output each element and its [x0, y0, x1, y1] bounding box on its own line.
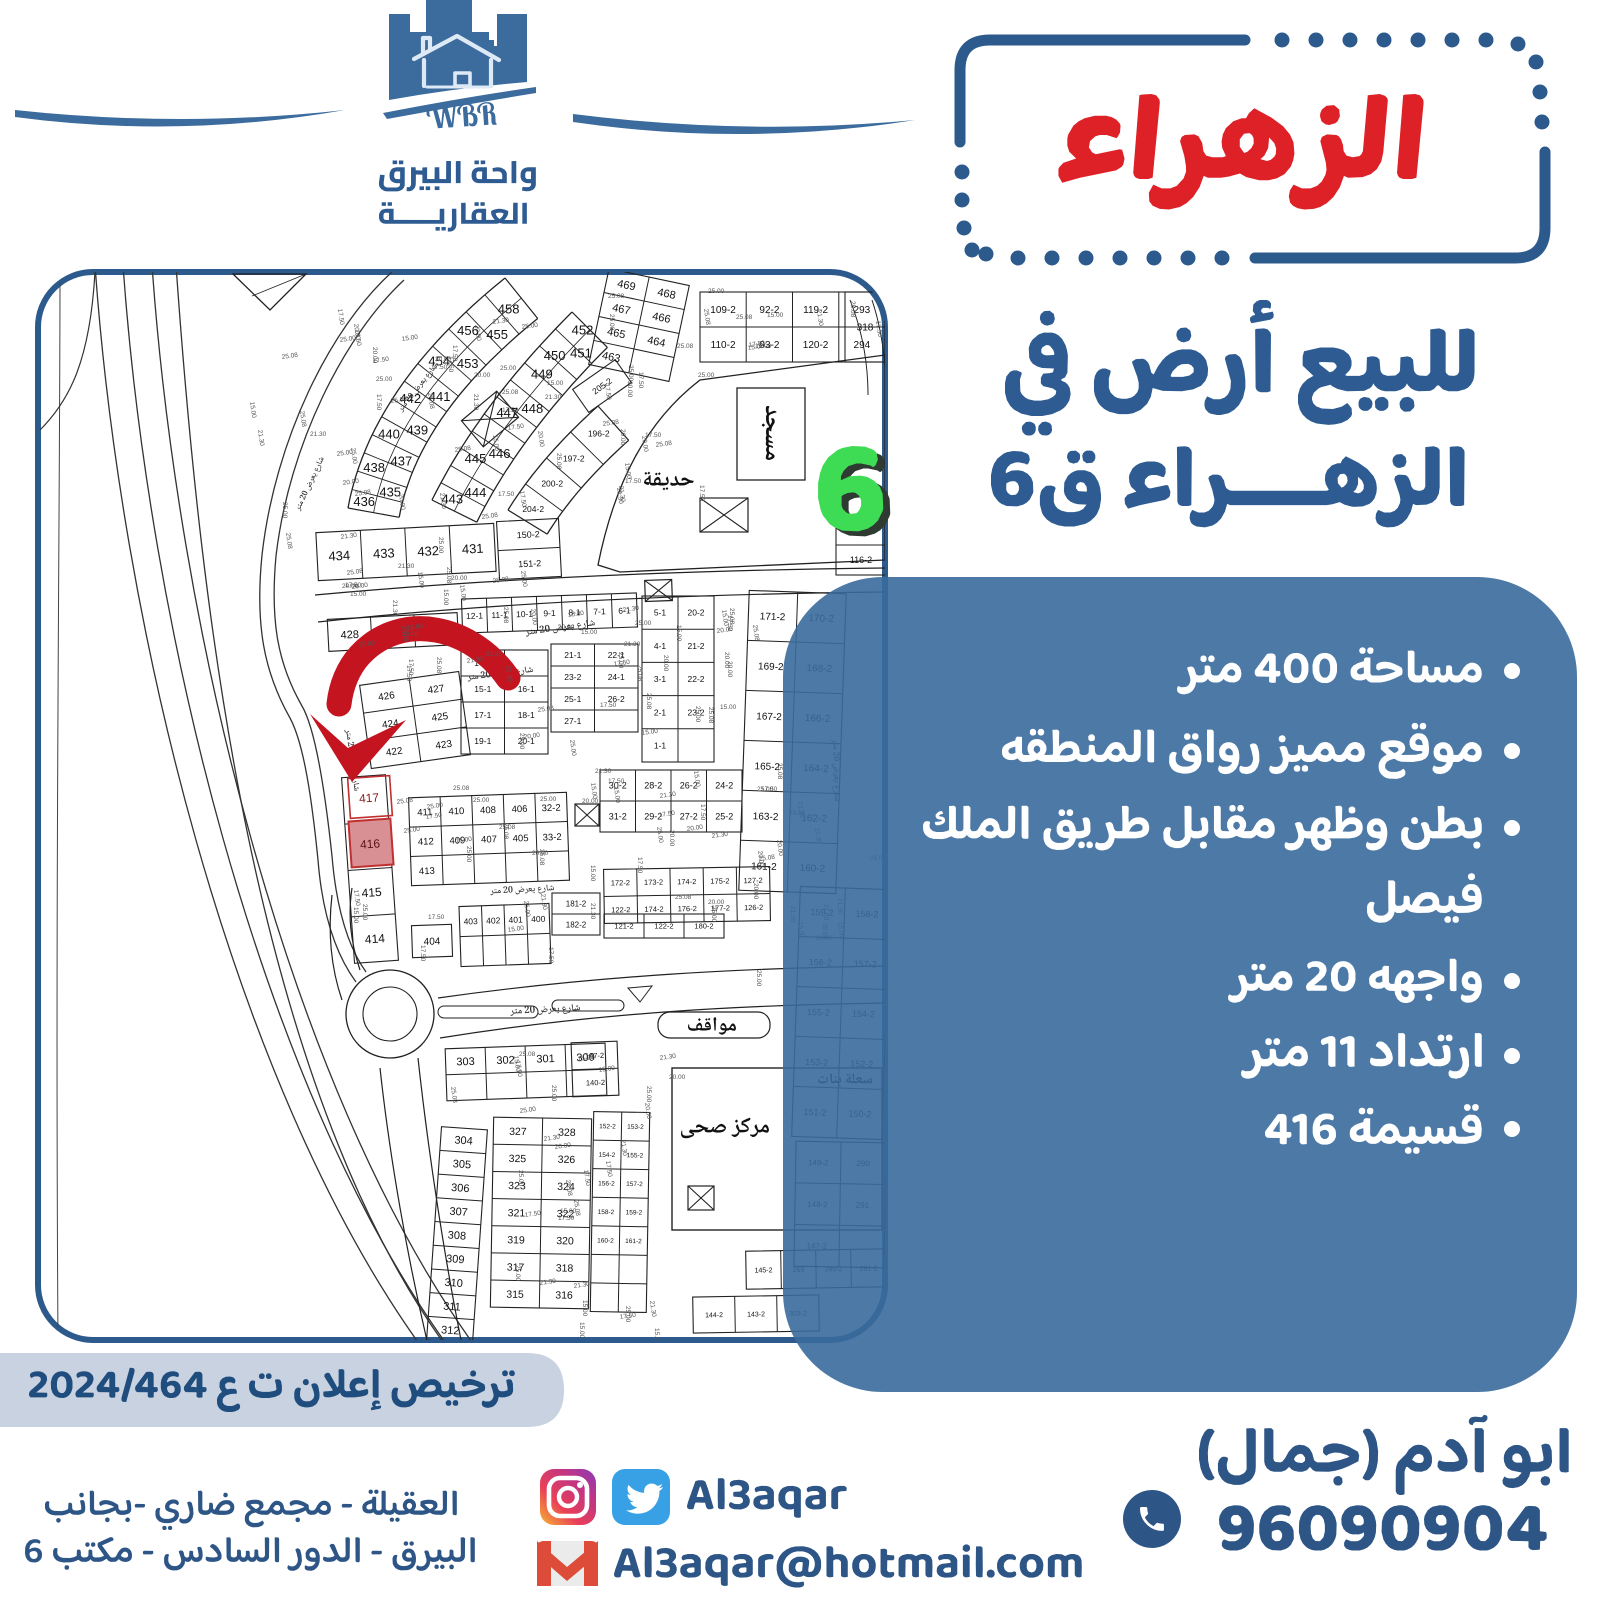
svg-text:28-2: 28-2: [644, 781, 662, 791]
svg-text:140-2: 140-2: [586, 1078, 605, 1088]
svg-text:175-2: 175-2: [710, 876, 729, 885]
svg-text:174-2: 174-2: [677, 877, 696, 886]
svg-text:401: 401: [508, 914, 523, 924]
svg-text:25.08: 25.08: [435, 657, 442, 674]
svg-text:153-2: 153-2: [627, 1124, 644, 1131]
svg-text:20.00: 20.00: [402, 631, 419, 638]
svg-text:17.50: 17.50: [608, 778, 625, 785]
svg-text:180-2: 180-2: [694, 922, 713, 931]
svg-text:304: 304: [454, 1134, 473, 1147]
svg-text:20.00: 20.00: [474, 372, 491, 379]
svg-text:25.00: 25.00: [635, 620, 652, 627]
svg-text:154-2: 154-2: [599, 1152, 616, 1159]
svg-text:150-2: 150-2: [516, 529, 540, 540]
svg-text:15.00: 15.00: [755, 343, 772, 350]
svg-text:173-2: 173-2: [644, 878, 663, 887]
svg-text:110-2: 110-2: [711, 340, 736, 351]
svg-text:25.00: 25.00: [500, 365, 517, 372]
svg-text:15.00: 15.00: [767, 312, 784, 319]
svg-text:182-2: 182-2: [566, 920, 587, 929]
svg-text:27-1: 27-1: [564, 716, 581, 726]
svg-text:158-2: 158-2: [598, 1209, 615, 1216]
svg-text:25.00: 25.00: [473, 797, 490, 804]
svg-text:20.00: 20.00: [752, 883, 759, 900]
svg-text:321: 321: [508, 1207, 526, 1219]
svg-text:15.00: 15.00: [547, 380, 564, 387]
svg-text:17.50: 17.50: [498, 491, 515, 498]
svg-text:448: 448: [522, 401, 544, 416]
svg-text:455: 455: [486, 327, 508, 342]
svg-text:172-2: 172-2: [611, 878, 630, 887]
svg-text:410: 410: [448, 806, 464, 818]
svg-text:197-2: 197-2: [563, 454, 585, 464]
svg-text:17.50: 17.50: [502, 407, 519, 414]
svg-text:18-1: 18-1: [518, 710, 535, 720]
svg-text:27-2: 27-2: [680, 812, 698, 822]
svg-text:17.50: 17.50: [699, 804, 706, 821]
svg-text:9-1: 9-1: [543, 608, 556, 618]
svg-text:157-2: 157-2: [626, 1181, 643, 1188]
svg-text:427: 427: [427, 683, 445, 696]
svg-text:122-2: 122-2: [611, 905, 630, 914]
svg-text:1-1: 1-1: [654, 741, 667, 751]
svg-text:15.00: 15.00: [578, 1322, 585, 1339]
svg-text:21.30: 21.30: [398, 563, 415, 570]
svg-text:25.08: 25.08: [499, 824, 516, 831]
svg-text:15.00: 15.00: [675, 625, 682, 642]
svg-text:309: 309: [446, 1253, 465, 1266]
svg-text:17-1: 17-1: [474, 710, 491, 720]
svg-text:311: 311: [443, 1301, 461, 1314]
svg-text:109-2: 109-2: [710, 305, 736, 316]
svg-text:417: 417: [359, 790, 380, 805]
svg-text:20.00: 20.00: [619, 429, 626, 446]
svg-text:15.00: 15.00: [352, 907, 359, 924]
svg-text:431: 431: [461, 541, 483, 557]
svg-text:17.50: 17.50: [636, 857, 643, 874]
svg-text:25.00: 25.00: [361, 904, 368, 921]
svg-text:439: 439: [406, 423, 428, 438]
svg-text:25.08: 25.08: [849, 301, 856, 318]
svg-text:458: 458: [498, 301, 520, 316]
svg-text:20.00: 20.00: [662, 655, 669, 672]
svg-text:450: 450: [544, 348, 566, 363]
svg-text:167-2: 167-2: [756, 711, 782, 723]
svg-text:17.50: 17.50: [375, 394, 382, 411]
svg-text:25.08: 25.08: [707, 707, 714, 724]
svg-text:305: 305: [452, 1158, 471, 1171]
svg-text:17.50: 17.50: [419, 945, 426, 962]
svg-text:32-2: 32-2: [541, 803, 560, 815]
svg-text:402: 402: [486, 915, 501, 925]
svg-text:20-2: 20-2: [687, 608, 704, 618]
svg-text:17.50: 17.50: [547, 947, 554, 964]
svg-text:20.00: 20.00: [669, 1074, 686, 1081]
svg-text:151-2: 151-2: [518, 558, 542, 569]
svg-text:17.50: 17.50: [625, 478, 642, 485]
svg-text:428: 428: [340, 629, 359, 642]
svg-text:17.50: 17.50: [600, 702, 617, 709]
svg-text:25.00: 25.00: [514, 1265, 521, 1282]
svg-text:325: 325: [509, 1153, 527, 1165]
svg-text:25.08: 25.08: [445, 567, 452, 584]
svg-text:301: 301: [536, 1053, 555, 1066]
svg-text:425: 425: [431, 711, 449, 724]
svg-text:326: 326: [558, 1154, 576, 1166]
svg-text:25.00: 25.00: [698, 372, 715, 379]
svg-text:307: 307: [449, 1206, 468, 1219]
svg-text:15.00: 15.00: [581, 629, 598, 636]
svg-text:433: 433: [373, 545, 395, 561]
svg-text:308: 308: [447, 1229, 466, 1242]
svg-text:15.00: 15.00: [350, 591, 367, 598]
svg-text:120-2: 120-2: [803, 340, 829, 351]
svg-text:406: 406: [511, 804, 527, 816]
svg-text:24-1: 24-1: [608, 672, 625, 682]
svg-text:408: 408: [480, 805, 496, 817]
svg-text:20.00: 20.00: [668, 830, 675, 847]
svg-text:181-2: 181-2: [566, 899, 587, 908]
svg-text:19-1: 19-1: [474, 736, 491, 746]
svg-text:196-2: 196-2: [588, 429, 610, 439]
svg-text:25.00: 25.00: [694, 706, 701, 723]
svg-text:24-2: 24-2: [715, 781, 733, 791]
svg-text:21.30: 21.30: [391, 600, 398, 617]
svg-text:17.50: 17.50: [637, 372, 644, 389]
svg-text:316: 316: [555, 1289, 573, 1301]
svg-text:116-2: 116-2: [850, 555, 872, 565]
svg-text:25.08: 25.08: [677, 343, 694, 350]
svg-text:452: 452: [572, 323, 594, 338]
svg-text:160-2: 160-2: [597, 1238, 614, 1245]
svg-text:328: 328: [558, 1127, 576, 1139]
svg-text:126-2: 126-2: [744, 903, 763, 912]
svg-text:25.08: 25.08: [608, 293, 625, 300]
svg-text:25.08: 25.08: [776, 763, 783, 780]
svg-text:437: 437: [391, 454, 413, 469]
svg-text:20.00: 20.00: [626, 381, 633, 398]
svg-text:20.00: 20.00: [708, 899, 725, 906]
svg-text:25.00: 25.00: [540, 796, 557, 803]
svg-text:3-1: 3-1: [654, 674, 667, 684]
svg-text:25.08: 25.08: [502, 389, 519, 396]
svg-text:432: 432: [417, 543, 439, 559]
svg-text:25.00: 25.00: [645, 1086, 652, 1103]
svg-text:21.30: 21.30: [624, 641, 641, 648]
svg-text:415: 415: [361, 885, 382, 900]
svg-text:412: 412: [418, 836, 434, 848]
svg-text:25-2: 25-2: [715, 812, 733, 822]
svg-text:31-2: 31-2: [609, 812, 627, 822]
svg-text:17.50: 17.50: [698, 485, 705, 502]
svg-text:25.00: 25.00: [376, 376, 393, 383]
svg-text:426: 426: [377, 690, 395, 703]
svg-text:25.00: 25.00: [708, 288, 725, 295]
svg-text:15.00: 15.00: [720, 704, 737, 711]
svg-text:25.00: 25.00: [517, 1170, 524, 1187]
svg-text:22-2: 22-2: [687, 674, 704, 684]
svg-text:144-2: 144-2: [705, 1312, 723, 1319]
svg-text:315: 315: [506, 1289, 524, 1301]
svg-text:25.08: 25.08: [502, 607, 509, 624]
svg-text:155-2: 155-2: [627, 1152, 644, 1159]
svg-text:25.08: 25.08: [645, 693, 652, 710]
svg-text:17.50: 17.50: [645, 432, 662, 439]
svg-text:405: 405: [512, 833, 528, 845]
svg-text:416: 416: [360, 836, 381, 851]
svg-text:25.00: 25.00: [465, 846, 472, 863]
svg-text:174-2: 174-2: [644, 905, 663, 914]
svg-text:21.30: 21.30: [310, 431, 327, 438]
svg-text:422: 422: [385, 746, 403, 759]
svg-text:15.00: 15.00: [581, 1300, 588, 1317]
svg-text:15.00: 15.00: [442, 589, 449, 606]
svg-text:25.00: 25.00: [627, 365, 634, 382]
svg-text:17.50: 17.50: [431, 364, 448, 371]
svg-text:20.00: 20.00: [435, 356, 452, 363]
svg-text:21-2: 21-2: [687, 641, 704, 651]
svg-text:17.50: 17.50: [428, 914, 445, 921]
svg-text:25.00: 25.00: [550, 1085, 557, 1102]
svg-text:310: 310: [444, 1277, 463, 1290]
svg-text:414: 414: [364, 931, 385, 946]
svg-text:20.00: 20.00: [532, 850, 549, 857]
svg-text:21-1: 21-1: [564, 650, 581, 660]
svg-text:161-2: 161-2: [625, 1238, 642, 1245]
svg-text:440: 440: [378, 427, 400, 442]
svg-text:33-2: 33-2: [542, 832, 561, 844]
svg-text:25.00: 25.00: [608, 314, 615, 331]
svg-text:200-2: 200-2: [541, 479, 563, 489]
svg-text:25.08: 25.08: [555, 453, 562, 470]
svg-text:15-1: 15-1: [474, 684, 491, 694]
svg-text:320: 320: [556, 1235, 574, 1247]
svg-text:21.30: 21.30: [486, 651, 503, 658]
svg-text:318: 318: [556, 1262, 574, 1274]
svg-text:434: 434: [328, 548, 350, 564]
svg-text:21.30: 21.30: [545, 394, 562, 401]
svg-text:12-1: 12-1: [466, 610, 484, 621]
svg-text:403: 403: [463, 916, 478, 926]
svg-text:25.00: 25.00: [755, 970, 762, 987]
svg-text:145-2: 145-2: [755, 1267, 773, 1274]
svg-text:21.30: 21.30: [595, 768, 612, 775]
svg-text:407: 407: [481, 834, 497, 846]
svg-text:306: 306: [451, 1182, 470, 1195]
svg-text:445: 445: [465, 451, 487, 466]
svg-text:20.00: 20.00: [451, 575, 468, 582]
svg-text:171-2: 171-2: [760, 611, 786, 623]
svg-text:17.50: 17.50: [407, 659, 414, 676]
svg-text:327: 327: [509, 1126, 527, 1138]
svg-text:23-2: 23-2: [564, 672, 581, 682]
svg-text:16-1: 16-1: [518, 684, 535, 694]
svg-text:121-2: 121-2: [614, 922, 633, 931]
svg-text:438: 438: [363, 460, 385, 475]
svg-text:25.08: 25.08: [675, 894, 692, 901]
svg-text:25.08: 25.08: [736, 314, 753, 321]
svg-text:17.50: 17.50: [726, 615, 733, 632]
svg-text:25.08: 25.08: [519, 1051, 536, 1058]
svg-text:444: 444: [465, 485, 487, 500]
svg-text:20.00: 20.00: [558, 624, 575, 631]
svg-text:25.00: 25.00: [281, 502, 288, 519]
svg-text:413: 413: [419, 866, 435, 878]
svg-text:21.30: 21.30: [472, 394, 479, 411]
svg-text:4-1: 4-1: [654, 641, 667, 651]
svg-text:25.00: 25.00: [617, 652, 624, 669]
svg-text:25-1: 25-1: [564, 694, 581, 704]
svg-text:156-2: 156-2: [598, 1180, 615, 1187]
svg-text:143-2: 143-2: [747, 1311, 765, 1318]
svg-text:21.30: 21.30: [589, 903, 596, 920]
svg-text:25.08: 25.08: [453, 785, 470, 792]
svg-text:17.50: 17.50: [558, 1215, 575, 1222]
svg-text:20.00: 20.00: [726, 661, 733, 678]
svg-text:122-2: 122-2: [654, 922, 673, 931]
svg-text:25.00: 25.00: [437, 537, 444, 554]
svg-text:2-1: 2-1: [654, 707, 667, 717]
svg-text:312: 312: [441, 1324, 460, 1337]
svg-text:15.00: 15.00: [589, 865, 596, 882]
svg-text:303: 303: [456, 1056, 475, 1069]
svg-text:25.00: 25.00: [710, 906, 717, 923]
svg-text:25.00: 25.00: [757, 786, 774, 793]
svg-text:7-1: 7-1: [593, 606, 606, 616]
svg-text:169-2: 169-2: [758, 661, 784, 673]
svg-text:451: 451: [570, 346, 592, 361]
svg-text:152-2: 152-2: [599, 1123, 616, 1130]
svg-text:453: 453: [457, 356, 479, 371]
svg-text:20.00: 20.00: [582, 798, 599, 805]
svg-text:319: 319: [507, 1234, 525, 1246]
svg-text:400: 400: [531, 914, 546, 924]
svg-text:176-2: 176-2: [678, 904, 697, 913]
svg-text:163-2: 163-2: [753, 811, 779, 823]
svg-text:423: 423: [435, 739, 453, 752]
svg-text:159-2: 159-2: [626, 1209, 643, 1216]
svg-text:5-1: 5-1: [654, 608, 667, 618]
svg-text:25.08: 25.08: [636, 665, 643, 682]
